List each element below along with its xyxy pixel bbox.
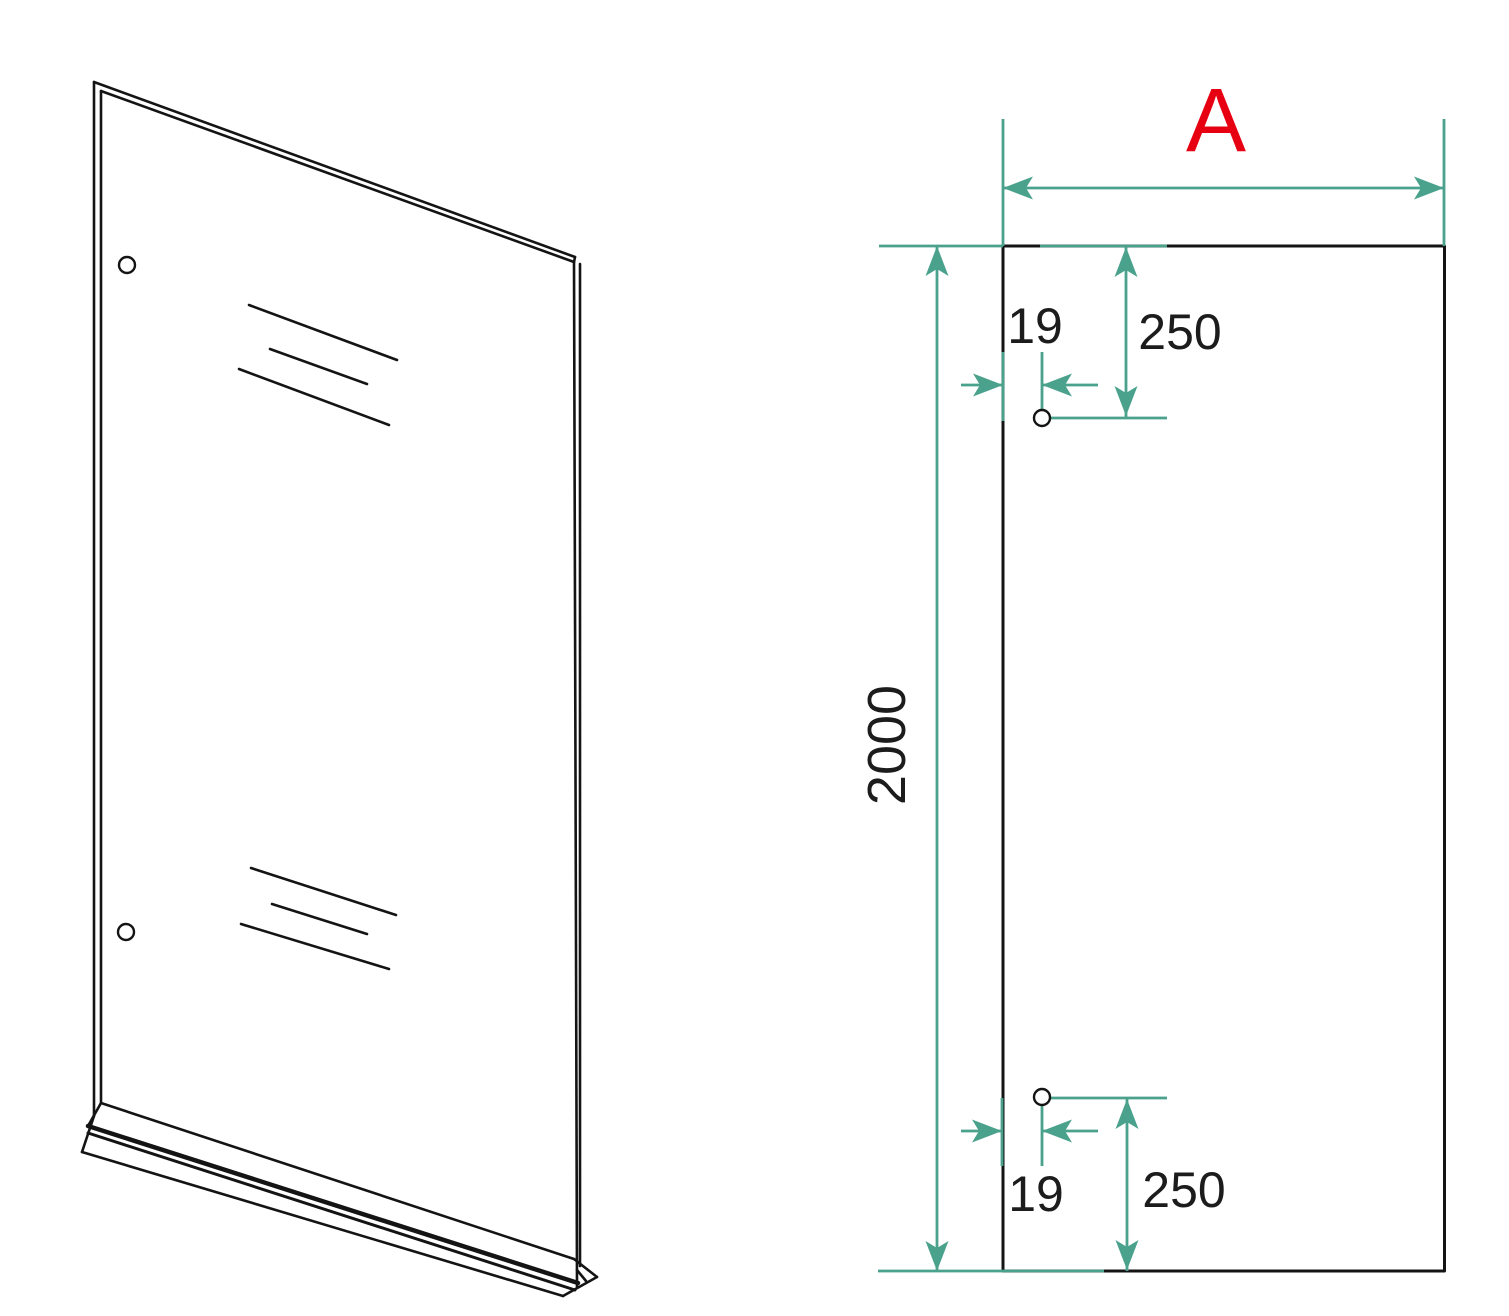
dimension-width-label: A — [1186, 71, 1246, 171]
dimension-height-2000: 2000 — [857, 246, 949, 1271]
iso-mounting-hole-top — [119, 257, 135, 273]
dimension-height-label: 2000 — [857, 685, 917, 805]
reflection-marks-bottom — [241, 868, 396, 969]
technical-drawing-page: A 2000 250 19 250 — [0, 0, 1509, 1316]
elevation-mounting-hole-top — [1034, 410, 1050, 426]
dimension-top-hole: 250 19 — [961, 246, 1222, 418]
base-profile — [82, 1103, 597, 1296]
extension-lines — [878, 119, 1444, 1271]
iso-mounting-hole-bottom — [118, 924, 134, 940]
panel-elevation-view: A 2000 250 19 250 — [857, 71, 1445, 1271]
glass-panel-outline — [94, 82, 580, 1287]
dimension-top-offset-y-label: 250 — [1138, 304, 1221, 360]
reflection-marks-top — [239, 305, 397, 425]
panel-front-outline — [1003, 246, 1445, 1271]
dimension-bottom-offset-y-label: 250 — [1142, 1162, 1225, 1218]
elevation-mounting-hole-bottom — [1034, 1089, 1050, 1105]
dimension-top-offset-x-label: 19 — [1007, 298, 1063, 354]
dimension-width-a: A — [1003, 71, 1444, 200]
panel-isometric-view — [82, 82, 597, 1296]
glass-panel-technical-drawing: A 2000 250 19 250 — [0, 0, 1509, 1316]
dimension-bottom-offset-x-label: 19 — [1008, 1166, 1064, 1222]
